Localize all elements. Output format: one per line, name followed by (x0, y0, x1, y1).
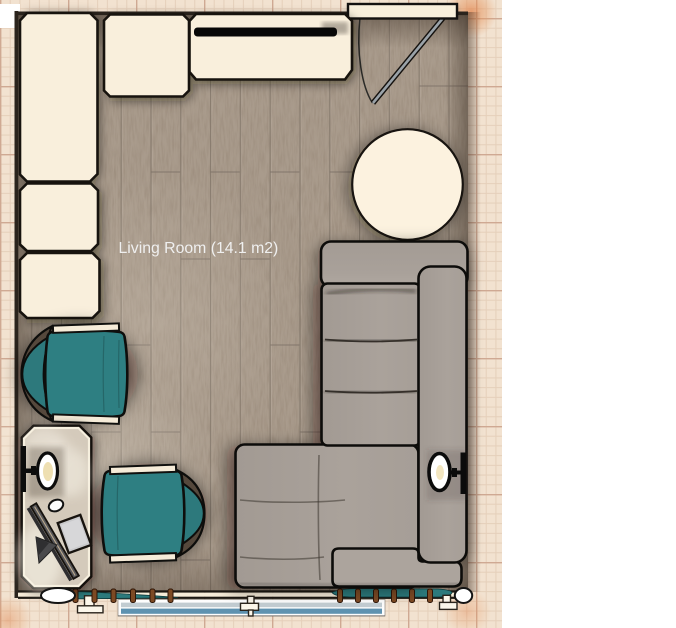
svg-text:Living Room (14.1 m2): Living Room (14.1 m2) (119, 240, 279, 257)
